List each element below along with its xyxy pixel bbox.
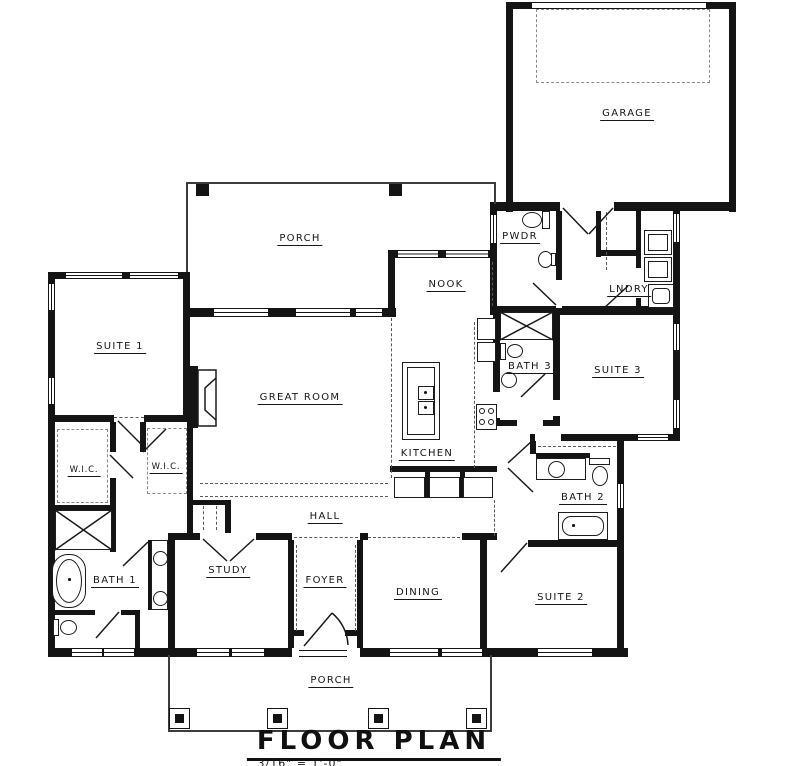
- floor-plan-drawing: GARAGE PORCH NOOK PWDR LNDRY SUITE 1 GRE…: [0, 0, 803, 766]
- room-label-bath-3: BATH 3: [506, 361, 554, 374]
- room-label-powder: PWDR: [500, 231, 540, 244]
- room-label-wic-right: W.I.C.: [150, 462, 183, 474]
- door-leaf: [508, 440, 533, 463]
- door-leaf: [533, 283, 556, 305]
- front-door-swing-arc: [332, 613, 348, 645]
- door-leaf: [143, 429, 166, 452]
- room-label-kitchen: KITCHEN: [399, 448, 455, 461]
- drawing-scale-note: 3/16" = 1'-0": [257, 757, 342, 766]
- room-label-study: STUDY: [206, 565, 250, 578]
- door-leaf: [508, 468, 533, 492]
- door-leaf: [521, 374, 545, 397]
- room-label-wic-left: W.I.C.: [68, 465, 101, 477]
- fireplace-firebox: [205, 378, 216, 420]
- room-label-great-room: GREAT ROOM: [258, 392, 343, 405]
- room-label-rear-porch: PORCH: [277, 233, 322, 246]
- door-leaf: [230, 539, 254, 561]
- room-label-suite-1: SUITE 1: [94, 341, 146, 354]
- door-leaf: [96, 612, 119, 638]
- room-label-foyer: FOYER: [304, 575, 347, 588]
- room-label-front-porch: PORCH: [308, 675, 353, 688]
- room-label-suite-2: SUITE 2: [535, 592, 587, 605]
- drawing-title: FLOOR PLAN: [247, 726, 501, 761]
- door-leaf: [563, 208, 588, 234]
- door-leaf: [589, 208, 613, 234]
- room-label-garage: GARAGE: [600, 108, 654, 121]
- door-leaf: [123, 542, 148, 566]
- front-door-leaf: [304, 613, 332, 646]
- room-label-suite-3: SUITE 3: [592, 365, 644, 378]
- room-label-bath-1: BATH 1: [91, 575, 139, 588]
- room-label-nook: NOOK: [427, 279, 466, 292]
- room-label-hall: HALL: [308, 511, 343, 524]
- door-leaf: [110, 455, 133, 478]
- door-leaf: [501, 543, 527, 572]
- door-leaf: [203, 539, 227, 561]
- door-leaf: [118, 421, 141, 444]
- room-label-bath-2: BATH 2: [559, 492, 607, 505]
- room-label-dining: DINING: [394, 587, 442, 600]
- plan-stroke-overlay: [0, 0, 803, 766]
- room-label-laundry: LNDRY: [607, 284, 651, 297]
